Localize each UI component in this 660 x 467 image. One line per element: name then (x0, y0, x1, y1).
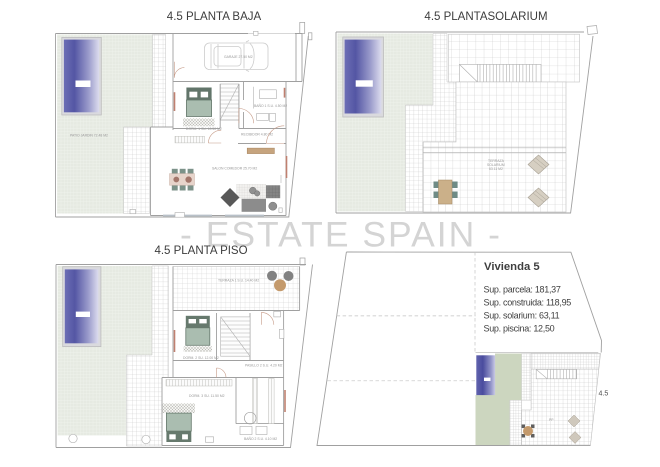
svg-text:BAÑO 2 S.U. 4.10 M2: BAÑO 2 S.U. 4.10 M2 (244, 436, 277, 441)
svg-text:DORM. 3 SU. 11.50 M2: DORM. 3 SU. 11.50 M2 (189, 394, 225, 398)
svg-text:TERRAZA 1 S.U. 14.40 M2: TERRAZA 1 S.U. 14.40 M2 (218, 279, 259, 283)
svg-text:PASILLO 2 S.U. 4.20 M2: PASILLO 2 S.U. 4.20 M2 (245, 364, 283, 368)
svg-text:BAÑO 1 S.U. 4.50 M2: BAÑO 1 S.U. 4.50 M2 (254, 103, 287, 108)
svg-text:4.5 PLANTA BAJA: 4.5 PLANTA BAJA (167, 11, 262, 23)
svg-text:SALON COMEDOR 25.70 M2: SALON COMEDOR 25.70 M2 (212, 167, 257, 171)
svg-text:PATIO JARDIN 72.48 M2: PATIO JARDIN 72.48 M2 (70, 134, 108, 138)
svg-text:Sup. solarium: 63,11: Sup. solarium: 63,11 (484, 311, 560, 321)
svg-text:Sup. construida: 118,95: Sup. construida: 118,95 (484, 298, 572, 308)
svg-text:PP: PP (549, 418, 554, 422)
svg-text:Sup. piscina: 12,50: Sup. piscina: 12,50 (484, 324, 555, 334)
svg-text:DORM. 2 SU. 12.00 M2: DORM. 2 SU. 12.00 M2 (183, 356, 219, 360)
svg-text:4.5 PLANTASOLARIUM: 4.5 PLANTASOLARIUM (424, 11, 547, 23)
svg-text:4.5: 4.5 (599, 391, 609, 398)
svg-text:63.11 M2: 63.11 M2 (489, 167, 503, 171)
svg-text:4.5 PLANTA PISO: 4.5 PLANTA PISO (154, 245, 247, 257)
svg-text:GARAJE 27.50 M2: GARAJE 27.50 M2 (224, 55, 253, 59)
svg-text:Sup. parcela: 181,37: Sup. parcela: 181,37 (484, 285, 561, 295)
svg-text:DORM. 1 SU. 10.50 M2: DORM. 1 SU. 10.50 M2 (186, 127, 222, 131)
svg-text:Vivienda 5: Vivienda 5 (484, 261, 540, 273)
